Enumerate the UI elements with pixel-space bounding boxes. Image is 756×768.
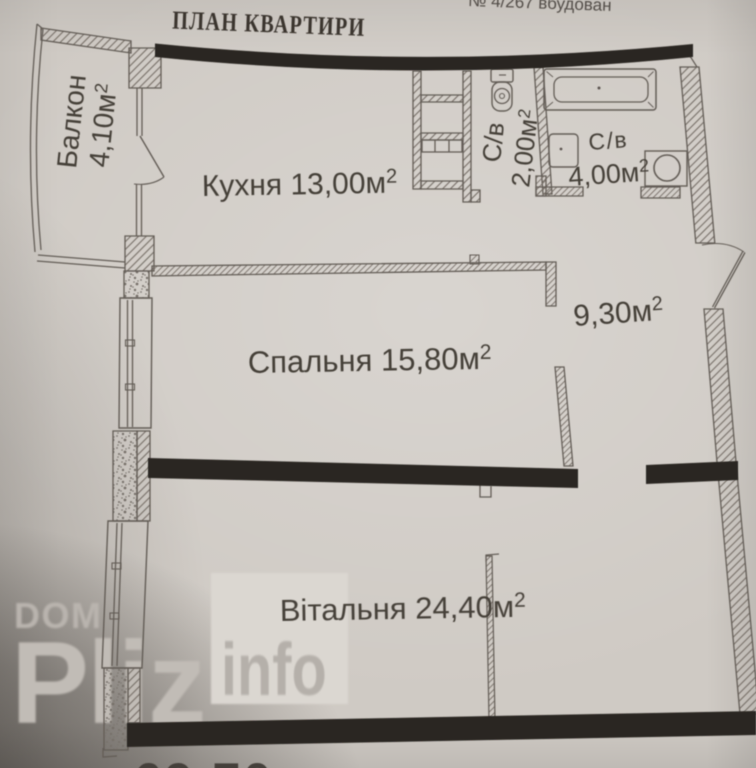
svg-text:ПЛАН КВАРТИРИ: ПЛАН КВАРТИРИ [172,6,366,42]
svg-text:info: info [221,629,327,712]
svg-text:Кухня 13,00м2: Кухня 13,00м2 [202,166,398,203]
svg-text:69,70: 69,70 [134,753,274,768]
svg-text:4,00м2: 4,00м2 [567,155,650,192]
svg-text:Спальня 15,80м2: Спальня 15,80м2 [248,341,492,380]
svg-text:С/в: С/в [588,126,629,155]
svg-text:9,30м2: 9,30м2 [572,293,664,333]
svg-text:С/в: С/в [476,121,510,164]
svg-text:Вітальня 24,40м2: Вітальня 24,40м2 [280,589,527,628]
svg-text:№ 4/267 вбудован: № 4/267 вбудован [468,0,612,15]
